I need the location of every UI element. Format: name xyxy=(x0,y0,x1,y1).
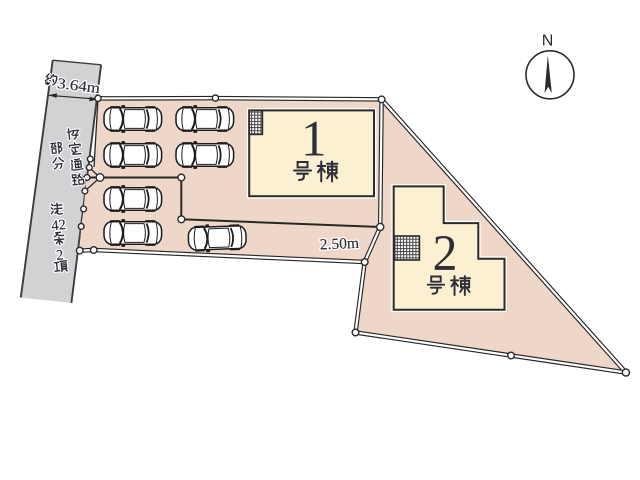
svg-text:1: 1 xyxy=(301,112,327,168)
svg-text:2.50m: 2.50m xyxy=(319,235,359,254)
svg-text:42: 42 xyxy=(51,217,67,234)
svg-text:2: 2 xyxy=(433,226,458,282)
svg-text:N: N xyxy=(542,33,554,50)
